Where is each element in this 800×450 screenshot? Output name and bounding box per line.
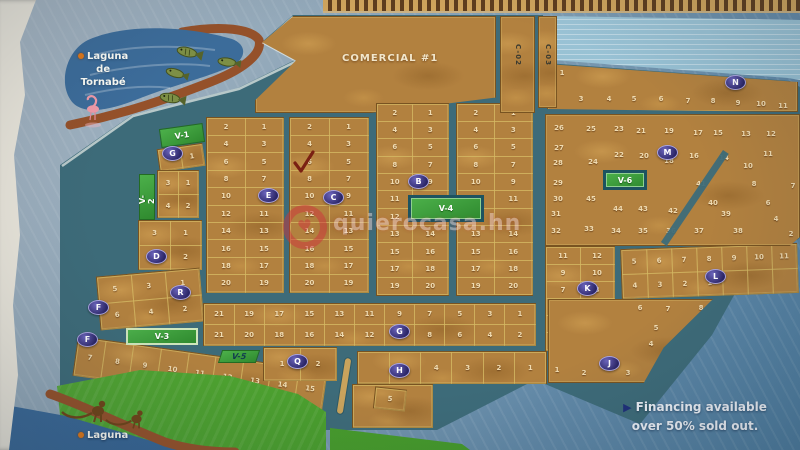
marker-K: K <box>577 281 598 296</box>
watermark-text: quierocasa.hn <box>333 211 521 236</box>
marker-F: F <box>77 332 98 347</box>
marker-L: L <box>705 269 726 284</box>
laguna-bottom-label: Laguna <box>78 430 128 441</box>
marker-H: H <box>389 363 410 378</box>
marker-G: G <box>162 146 183 161</box>
lot-map-photo: COMERCIAL #12143658710912111413161518172… <box>0 0 800 450</box>
marker-Q: Q <box>287 354 308 369</box>
orange-dot-icon <box>78 53 84 59</box>
marker-J: J <box>599 356 620 371</box>
marker-M: M <box>657 145 678 160</box>
marker-F: F <box>88 300 109 315</box>
marker-G: G <box>389 324 410 339</box>
lagoon-title: Laguna de Tornabé <box>78 50 128 89</box>
marker-N: N <box>725 75 746 90</box>
marker-R: R <box>170 285 191 300</box>
marker-B: B <box>408 174 429 189</box>
marker-E: E <box>258 188 279 203</box>
marker-C: C <box>323 190 344 205</box>
orange-dot-icon <box>78 432 84 438</box>
triangle-arrow-icon: ▶ <box>623 401 631 414</box>
marker-D: D <box>146 249 167 264</box>
financing-note: ▶Financing available over 50% sold out. <box>590 398 800 436</box>
